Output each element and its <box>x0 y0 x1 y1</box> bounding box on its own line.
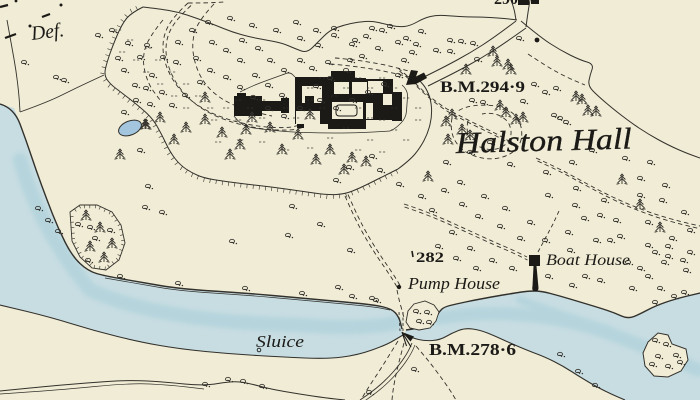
svg-text:B.M.294·9: B.M.294·9 <box>440 79 525 96</box>
svg-text:Def.: Def. <box>29 19 65 45</box>
svg-text:Boat House: Boat House <box>546 252 630 269</box>
svg-text:290: 290 <box>494 0 518 8</box>
svg-text:Pump House: Pump House <box>407 274 501 293</box>
svg-text:B.M.278·6: B.M.278·6 <box>429 340 516 359</box>
svg-text:Sluice: Sluice <box>256 332 305 351</box>
svg-text:282: 282 <box>416 250 444 266</box>
svg-text:Halston Hall: Halston Hall <box>454 122 632 160</box>
